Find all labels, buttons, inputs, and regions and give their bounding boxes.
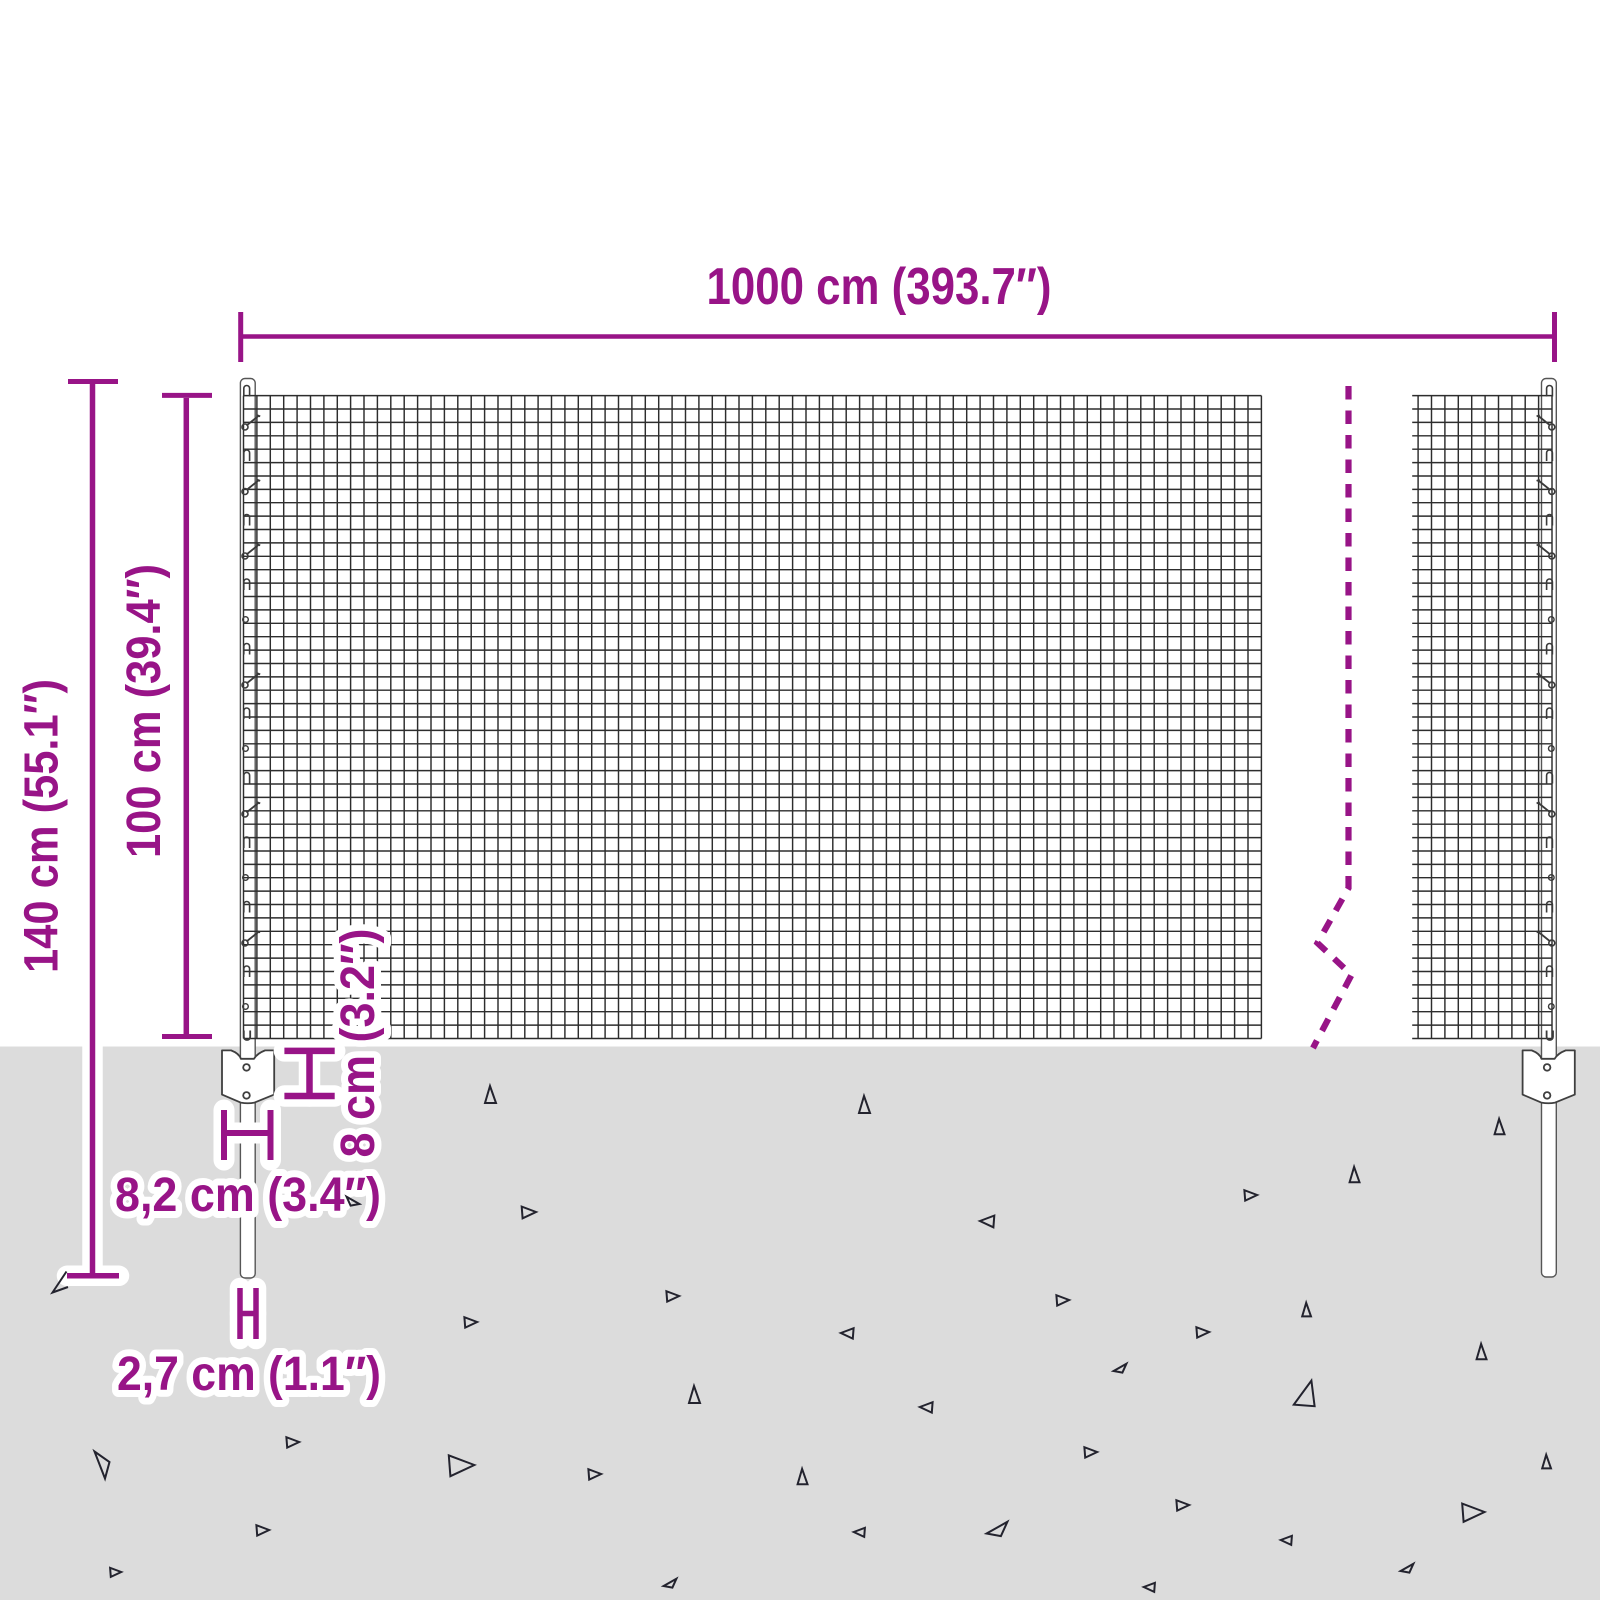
svg-text:100 cm (39.4″): 100 cm (39.4″) — [118, 564, 171, 858]
svg-text:2,7 cm (1.1″): 2,7 cm (1.1″) — [117, 1348, 381, 1401]
svg-text:1000 cm (393.7″): 1000 cm (393.7″) — [707, 258, 1052, 316]
svg-text:8,2 cm (3.4″): 8,2 cm (3.4″) — [115, 1169, 381, 1222]
svg-text:140 cm (55.1″): 140 cm (55.1″) — [16, 679, 69, 973]
svg-text:8 cm (3.2″): 8 cm (3.2″) — [332, 929, 385, 1158]
